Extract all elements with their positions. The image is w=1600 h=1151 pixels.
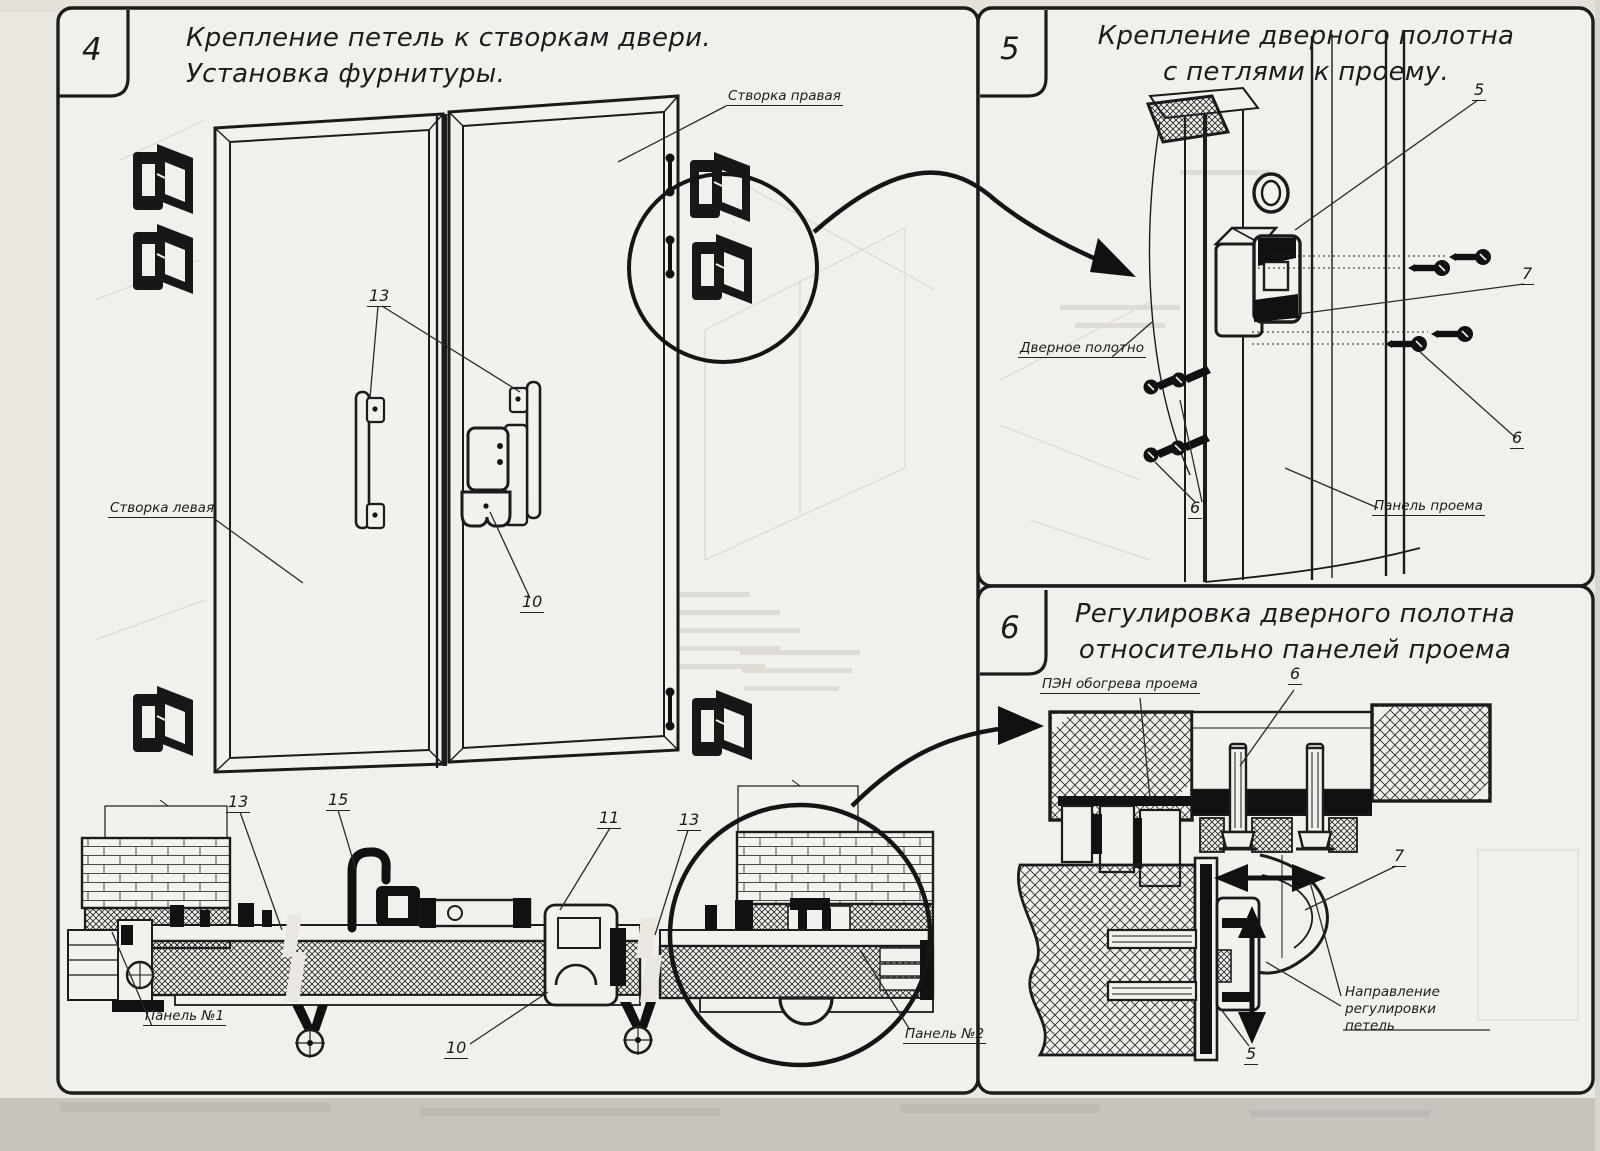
callout-15-hook: 15 <box>326 790 350 811</box>
callout-6-screws-left: 6 <box>1188 498 1202 519</box>
callout-5-hinge: 5 <box>1472 80 1486 101</box>
callout-5-hinge-plate: 5 <box>1244 1044 1258 1065</box>
panel5-title-line1: Крепление дверного полотна <box>1046 18 1566 54</box>
callout-7-plate: 7 <box>1520 264 1534 285</box>
label-leaf-right: Створка правая <box>726 88 843 106</box>
callout-13-handles: 13 <box>367 286 391 307</box>
panel4-door-leaves <box>215 96 678 772</box>
panel4-number: 4 <box>82 32 102 68</box>
panel5-title-line2: с петлями к проему. <box>1046 54 1566 90</box>
label-adjustment-direction-line2: петель <box>1345 1018 1520 1035</box>
label-panel-no1: Панель №1 <box>143 1008 226 1026</box>
panel4-latch-assembly <box>462 425 527 526</box>
panel6-number: 6 <box>1000 610 1020 646</box>
label-opening-panel: Панель проема <box>1372 498 1485 516</box>
callout-13-section-left: 13 <box>226 792 250 813</box>
drawing-canvas <box>0 0 1600 1151</box>
assembly-instruction-sheet: 4 Крепление петель к створкам двери. Уст… <box>0 0 1600 1151</box>
panel5-number: 5 <box>1000 31 1020 67</box>
panel4-title: Крепление петель к створкам двери. Устан… <box>186 20 711 92</box>
panel4-center-lock-section <box>545 905 626 1005</box>
panel4-title-line1: Крепление петель к створкам двери. <box>186 20 711 56</box>
callout-11-lock: 11 <box>597 808 621 829</box>
label-door-leaf: Дверное полотно <box>1018 340 1146 358</box>
callout-10-caster: 10 <box>444 1038 468 1059</box>
panel4-title-line2: Установка фурнитуры. <box>186 56 711 92</box>
callout-6-bolt: 6 <box>1288 664 1302 685</box>
callout-7-hinge-arm: 7 <box>1392 846 1406 867</box>
label-panel-no2: Панель №2 <box>903 1026 986 1044</box>
label-adjustment-direction: Направление регулировки петель <box>1343 984 1522 1036</box>
panel6-title: Регулировка дверного полотна относительн… <box>1030 596 1560 668</box>
label-pen-heater: ПЭН обогрева проема <box>1040 676 1200 694</box>
panel5-hinge-assembly <box>1216 228 1300 336</box>
panel4-left-end-bracket <box>68 920 164 1012</box>
label-adjustment-direction-line1: Направление регулировки <box>1345 984 1520 1018</box>
panel6-title-line1: Регулировка дверного полотна <box>1030 596 1560 632</box>
callout-10-latch: 10 <box>520 592 544 613</box>
panel6-title-line2: относительно панелей проема <box>1030 632 1560 668</box>
callout-6-screws-right: 6 <box>1510 428 1524 449</box>
callout-13-section-right: 13 <box>677 810 701 831</box>
panel5-title: Крепление дверного полотна с петлями к п… <box>1046 18 1566 90</box>
label-leaf-left: Створка левая <box>108 500 216 518</box>
